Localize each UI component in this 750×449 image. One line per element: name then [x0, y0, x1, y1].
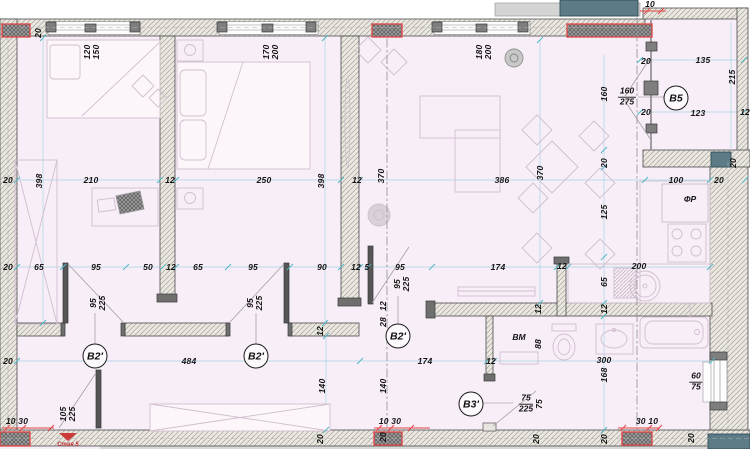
floor-plan-drawing: [0, 0, 750, 449]
floor-plan-sheet: 2012015017020018020010201352151602012312…: [0, 0, 750, 449]
